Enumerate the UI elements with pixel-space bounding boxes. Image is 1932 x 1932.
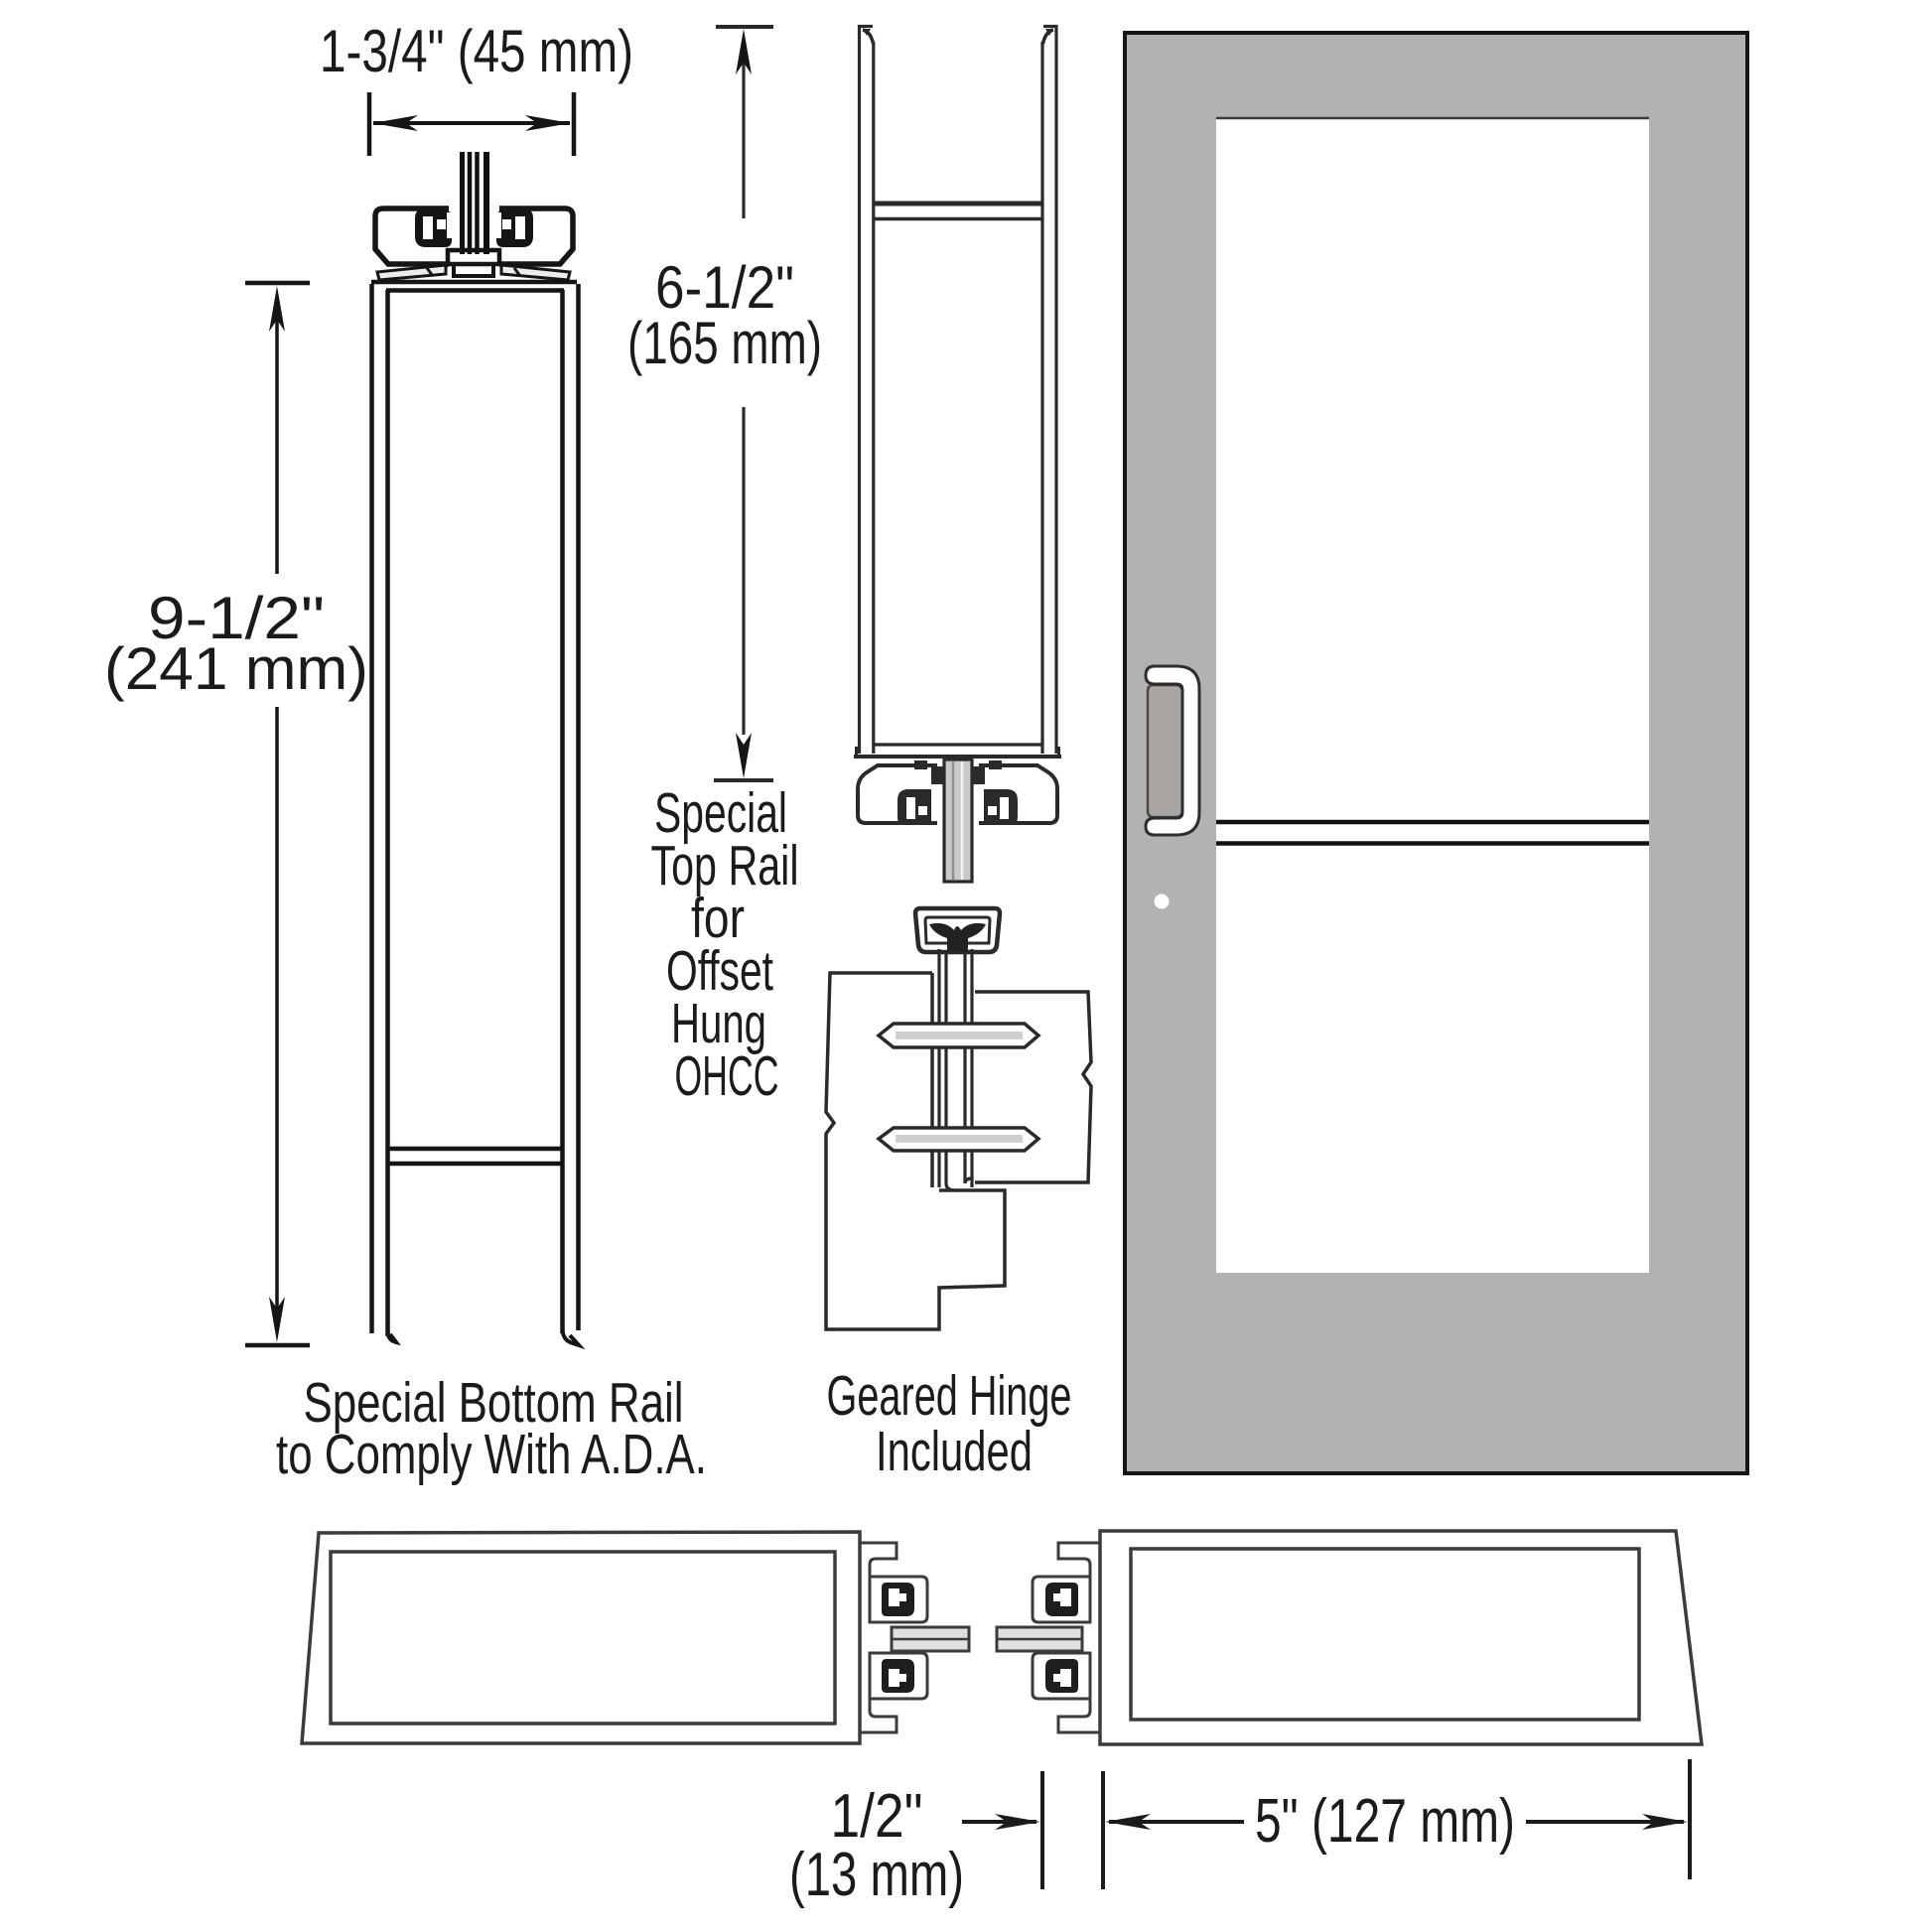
svg-text:(241 mm): (241 mm) [104, 635, 368, 702]
svg-text:1-3/4" (45 mm): 1-3/4" (45 mm) [320, 18, 633, 84]
svg-text:5" (127 mm): 5" (127 mm) [1255, 1787, 1515, 1856]
svg-text:to Comply With A.D.A.: to Comply With A.D.A. [276, 1423, 707, 1486]
svg-text:Geared Hinge: Geared Hinge [827, 1364, 1072, 1428]
svg-text:OHCC: OHCC [675, 1044, 779, 1108]
svg-text:(13 mm): (13 mm) [789, 1841, 964, 1909]
svg-text:Included: Included [876, 1420, 1033, 1483]
svg-text:(165 mm): (165 mm) [627, 310, 822, 376]
